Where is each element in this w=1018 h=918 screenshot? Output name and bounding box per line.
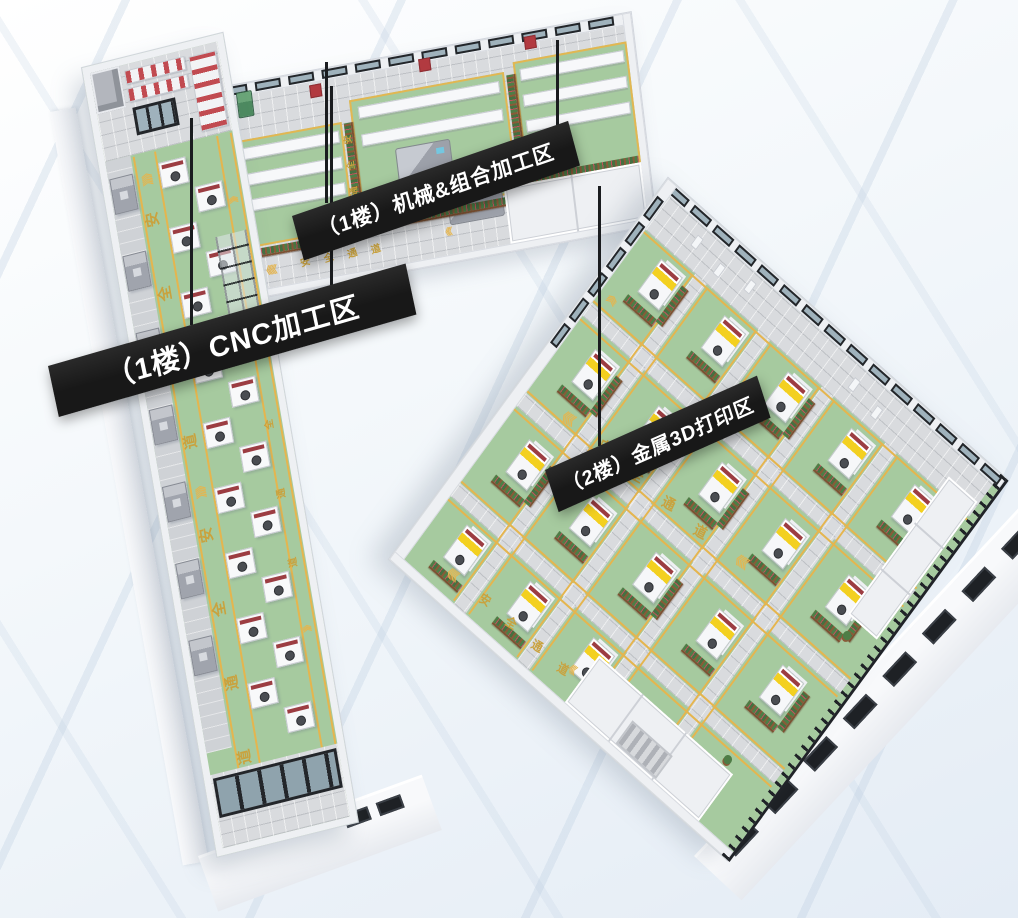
cnc-machine xyxy=(225,547,257,579)
chevron-triple-left-icon: 《《《 xyxy=(192,480,205,498)
room-wall xyxy=(914,522,944,549)
chevron-triple-left-icon: 《《《 xyxy=(729,550,749,570)
room-wall xyxy=(880,568,910,595)
cnc-machine xyxy=(261,571,293,603)
cnc-machine xyxy=(247,677,279,709)
facade-window xyxy=(922,609,957,645)
facade-window xyxy=(961,566,996,602)
cnc-machine xyxy=(228,375,260,407)
safety-lane-text-char: 道 xyxy=(288,556,299,568)
chevron-triple-left-icon: 《《 xyxy=(227,191,237,203)
chevron-triple-left-icon: 《《 xyxy=(441,228,451,239)
red-machine xyxy=(524,35,537,50)
cnc-machine xyxy=(194,180,226,212)
facade-window xyxy=(376,794,405,816)
banner-pole xyxy=(556,40,559,125)
red-machine xyxy=(418,57,431,72)
chevron-triple-left-icon: 《《 xyxy=(605,287,620,304)
safety-lane-text-char: 全 xyxy=(346,160,356,171)
safety-lane-text-char: 安 xyxy=(199,526,216,544)
chevron-triple-left-icon: 《《《 xyxy=(138,167,151,185)
safety-lane-text-char: 道 xyxy=(182,432,199,450)
cnc-machine xyxy=(169,221,201,253)
red-machine xyxy=(309,83,322,98)
cnc-machine xyxy=(180,287,212,319)
safety-lane-text-char: 道 xyxy=(370,244,382,257)
safety-lane-text-char: 全 xyxy=(265,418,276,430)
banner-pole xyxy=(190,118,193,325)
cnc-machine xyxy=(214,482,246,514)
robot-arm-green xyxy=(236,90,255,119)
safety-lane-text-char: 安 xyxy=(144,210,161,228)
cnc-machine xyxy=(273,636,305,668)
banner-pole xyxy=(330,86,333,285)
safety-lane-text-char: 通 xyxy=(277,487,288,499)
cnc-machine xyxy=(236,612,268,644)
room-wall xyxy=(570,175,579,232)
safety-lane-text-char: 全 xyxy=(211,600,228,618)
banner-pole xyxy=(598,186,601,446)
safety-lane-text-char: 通 xyxy=(224,674,241,692)
cnc-machine xyxy=(239,441,271,473)
safety-lane-text-char: 通 xyxy=(347,248,359,261)
facade-window xyxy=(1001,524,1018,560)
banner-pole xyxy=(325,62,328,203)
potted-plant xyxy=(722,753,734,766)
safety-lane-text-char: 安 xyxy=(343,134,353,145)
cnc-machine xyxy=(250,506,282,538)
safety-lane-text-char: 全 xyxy=(157,284,174,302)
cnc-machine xyxy=(158,156,190,188)
chevron-triple-left-icon: 《《 xyxy=(301,620,311,632)
cnc-machine xyxy=(203,417,235,449)
factory-3d-overview: 安全通《《《《《《《《《安全通道 安全通道安全通道安全通道《《《《《《《《《《 … xyxy=(0,0,1018,918)
cnc-machine xyxy=(284,701,316,733)
safety-lane-text-char: 道 xyxy=(237,748,254,766)
facade-window xyxy=(882,651,917,687)
